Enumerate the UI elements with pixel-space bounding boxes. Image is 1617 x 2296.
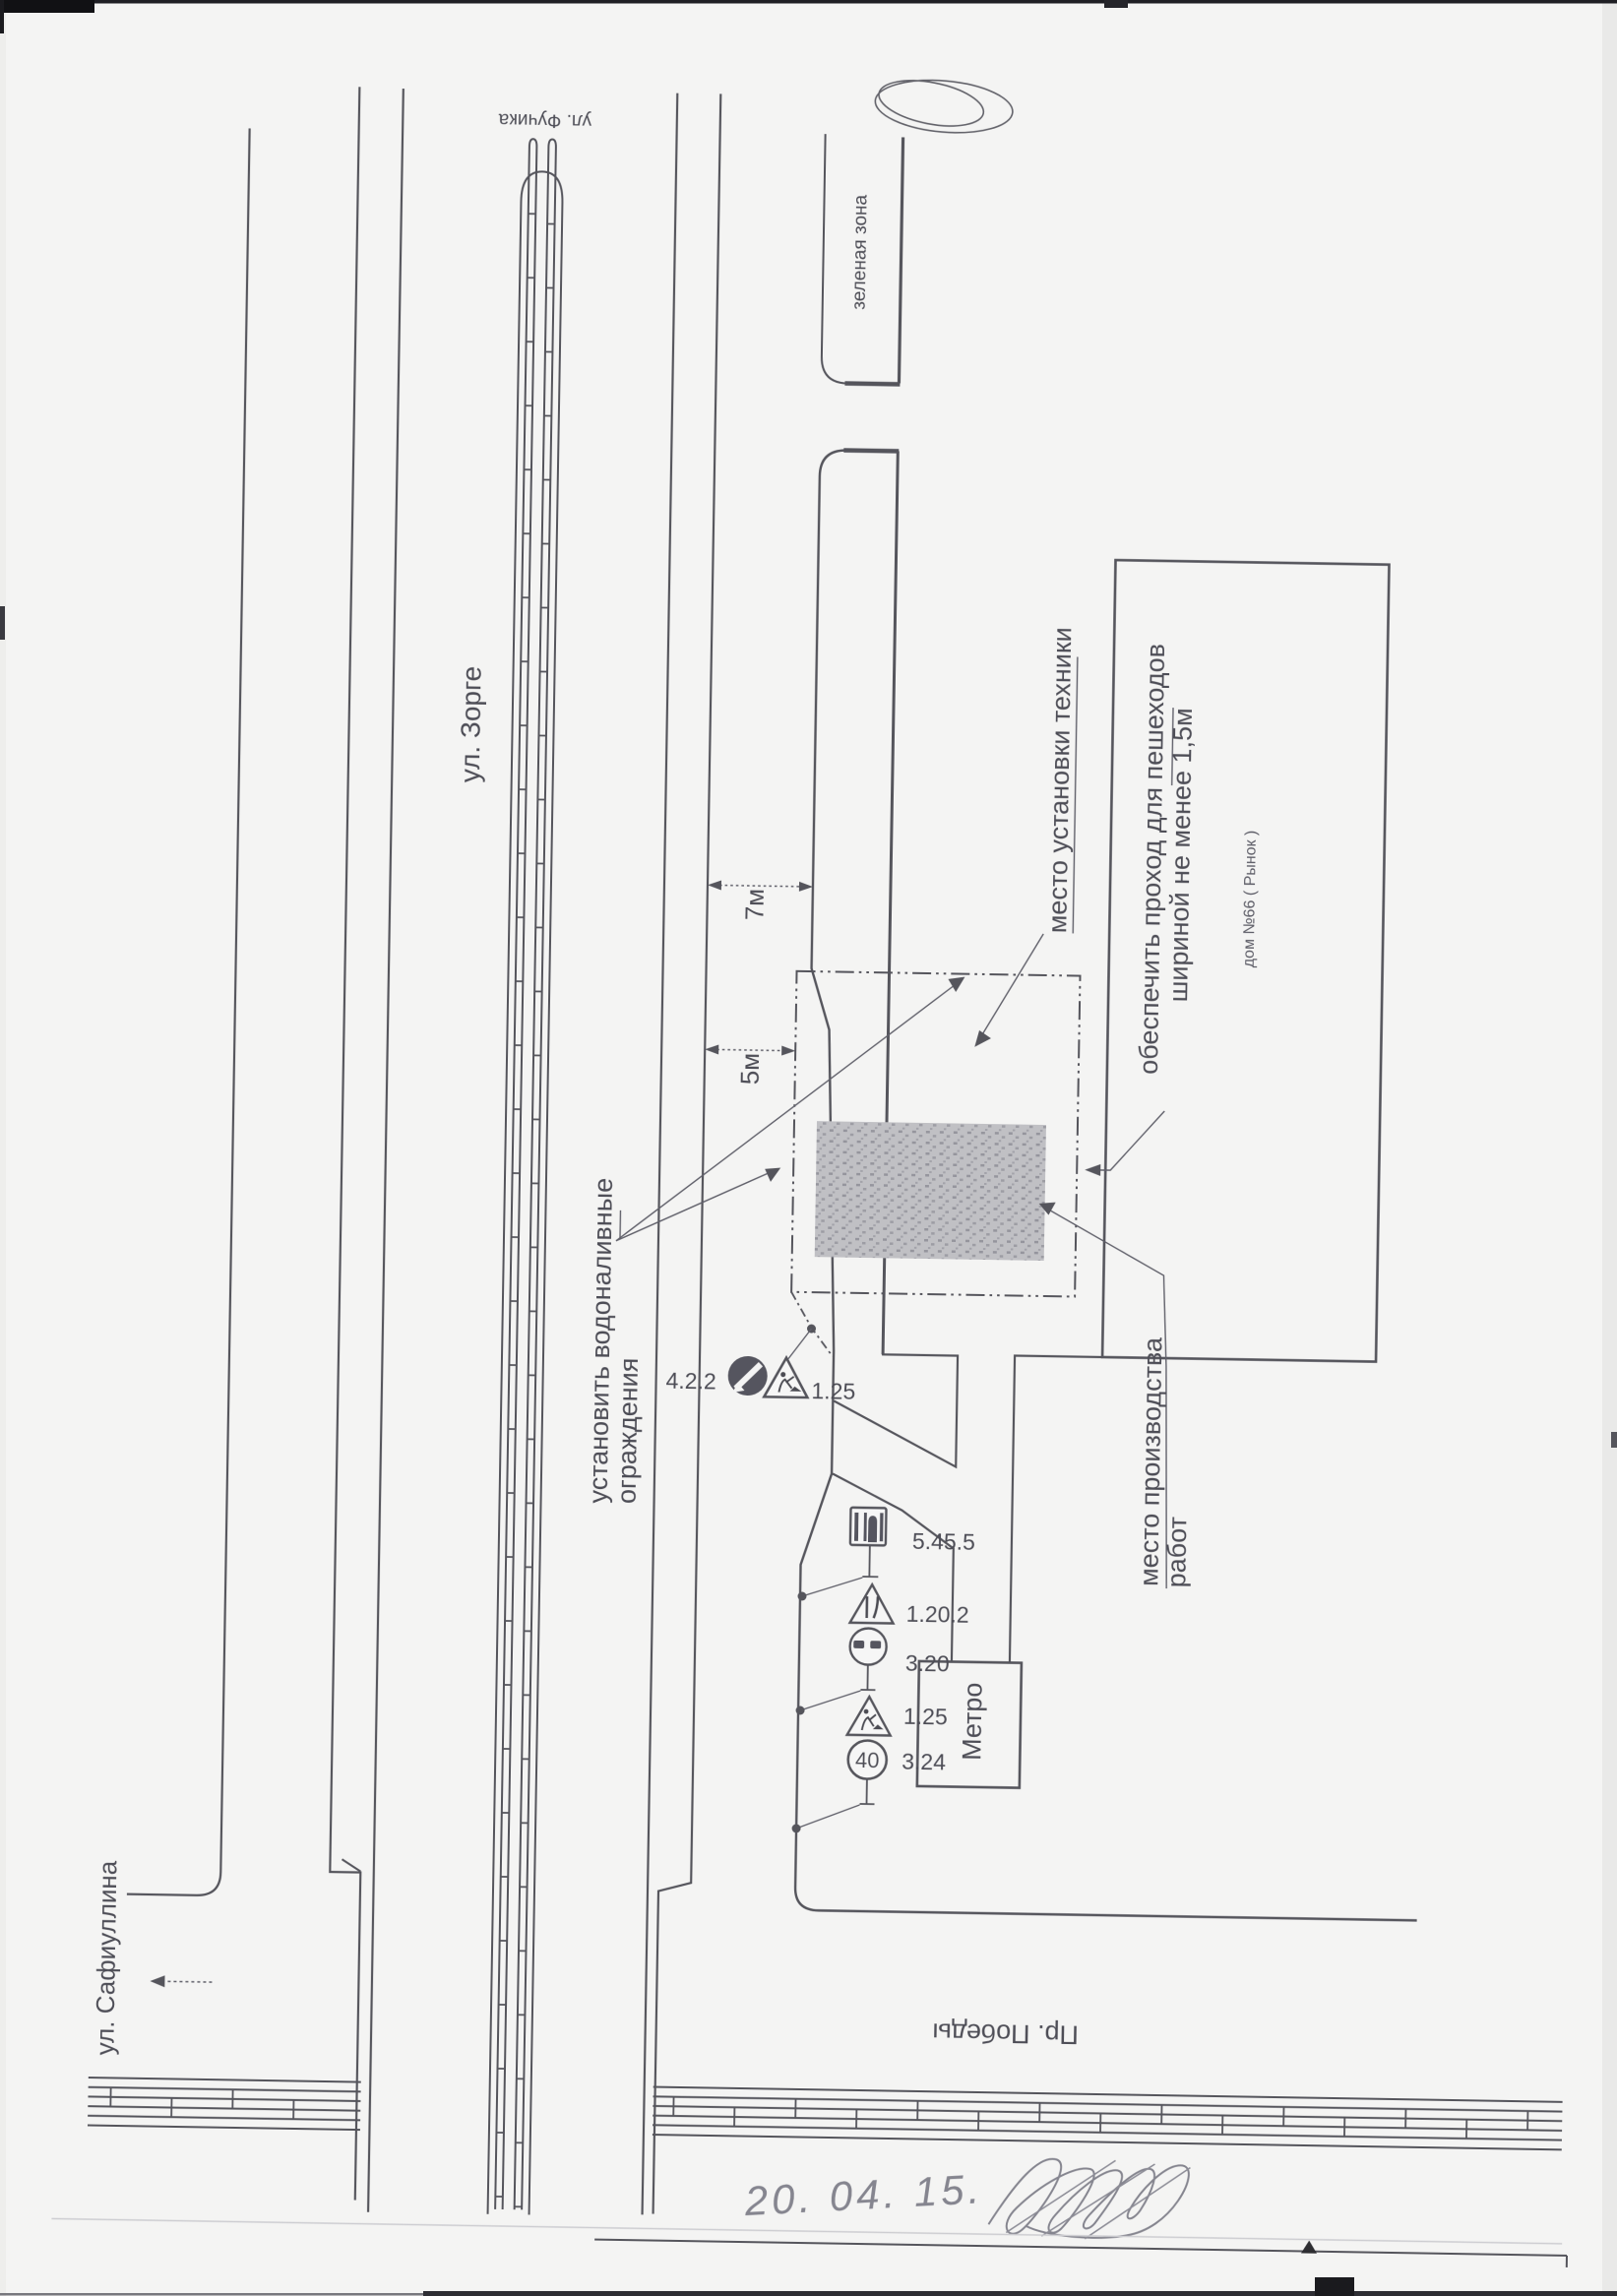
svg-text:4.2.2: 4.2.2 [665,1368,716,1395]
svg-text:3.24: 3.24 [902,1749,946,1775]
svg-text:шириной не менее 1,5м: шириной не менее 1,5м [1163,708,1198,1002]
svg-text:место установки техники: место установки техники [1042,627,1077,933]
svg-text:работ: работ [1161,1517,1192,1588]
svg-text:5.45.5: 5.45.5 [912,1528,975,1555]
svg-text:1.25: 1.25 [903,1704,948,1730]
svg-text:Пр. Победы: Пр. Победы [932,2017,1079,2049]
svg-text:7м: 7м [739,889,770,921]
svg-text:дом №66 ( Рынок ): дом №66 ( Рынок ) [1241,831,1260,968]
svg-text:1.25: 1.25 [811,1378,855,1404]
svg-text:Метро: Метро [957,1682,987,1761]
svg-text:3.20: 3.20 [905,1650,950,1677]
svg-text:40: 40 [855,1748,880,1772]
svg-text:ограждения: ограждения [612,1357,644,1504]
svg-text:5м: 5м [735,1053,766,1086]
svg-text:ул. Фучика: ул. Фучика [498,109,591,132]
svg-text:1.20.2: 1.20.2 [906,1601,969,1628]
svg-text:зеленая зона: зеленая зона [849,194,872,310]
svg-text:ул. Зорге: ул. Зорге [455,666,487,783]
svg-text:ул. Сафиуллина: ул. Сафиуллина [90,1860,122,2056]
